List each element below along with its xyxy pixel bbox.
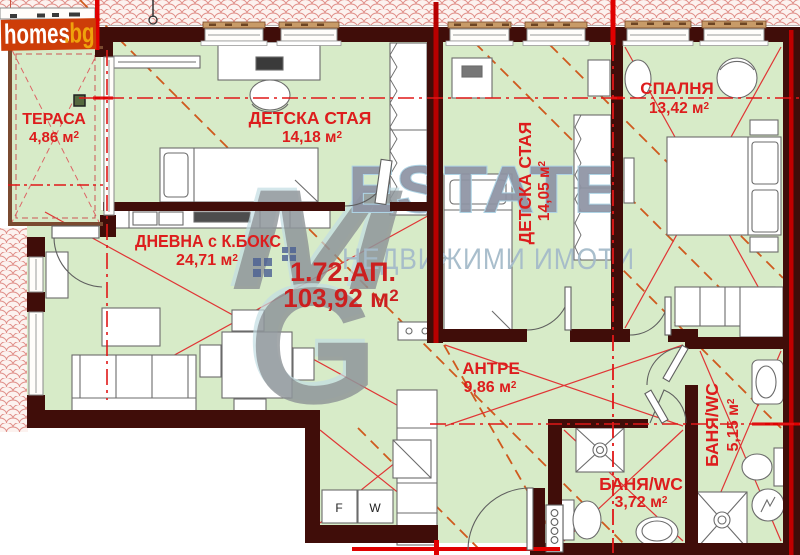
svg-text:БАНЯ/WC: БАНЯ/WC	[702, 383, 722, 467]
svg-text:ТЕРАСА: ТЕРАСА	[22, 111, 86, 128]
svg-text:24,71 м2: 24,71 м2	[176, 252, 238, 269]
svg-text:5,15 м2: 5,15 м2	[725, 398, 742, 451]
svg-text:13,42 м2: 13,42 м2	[649, 100, 710, 117]
svg-text:ДЕТСКА СТАЯ: ДЕТСКА СТАЯ	[515, 122, 535, 245]
svg-text:СПАЛНЯ: СПАЛНЯ	[640, 79, 713, 98]
svg-text:3,72 м2: 3,72 м2	[615, 494, 668, 511]
svg-text:ДНЕВНА с К.БОКС: ДНЕВНА с К.БОКС	[135, 231, 281, 251]
svg-text:14,05 м2: 14,05 м2	[536, 161, 553, 222]
svg-text:F: F	[335, 501, 342, 515]
svg-text:4,86 м2: 4,86 м2	[29, 129, 79, 146]
svg-text:103,92 м2: 103,92 м2	[283, 283, 398, 313]
svg-text:ДЕТСКА СТАЯ: ДЕТСКА СТАЯ	[249, 108, 372, 128]
svg-text:.bg: .bg	[64, 18, 95, 49]
svg-text:14,18 м2: 14,18 м2	[282, 129, 343, 146]
svg-text:W: W	[369, 501, 381, 515]
svg-text:БАНЯ/WC: БАНЯ/WC	[599, 474, 683, 494]
svg-text:АНТРЕ: АНТРЕ	[462, 359, 520, 378]
svg-text:9,86 м2: 9,86 м2	[464, 379, 517, 396]
svg-text:homes: homes	[4, 19, 70, 51]
